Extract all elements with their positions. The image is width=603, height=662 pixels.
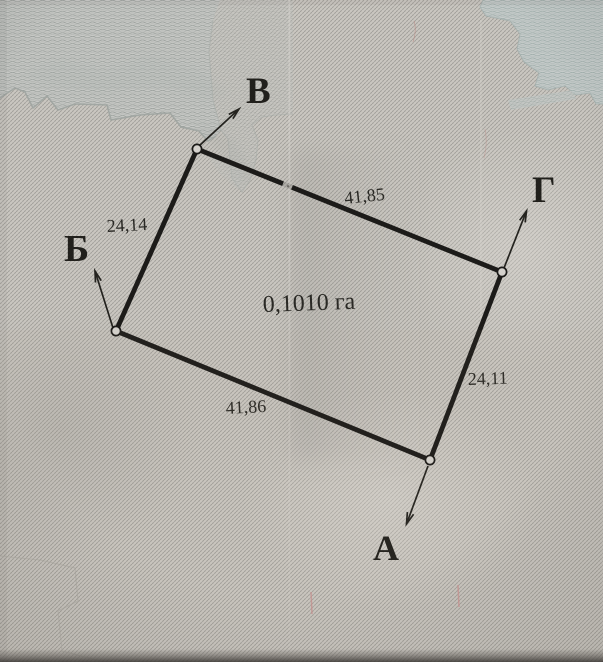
- svg-text:В: В: [246, 71, 271, 112]
- svg-text:41,85: 41,85: [343, 184, 385, 208]
- svg-text:Г: Г: [532, 170, 556, 211]
- svg-text:Б: Б: [64, 228, 89, 270]
- svg-text:0,1010 га: 0,1010 га: [262, 289, 356, 318]
- svg-text:24,14: 24,14: [106, 214, 147, 236]
